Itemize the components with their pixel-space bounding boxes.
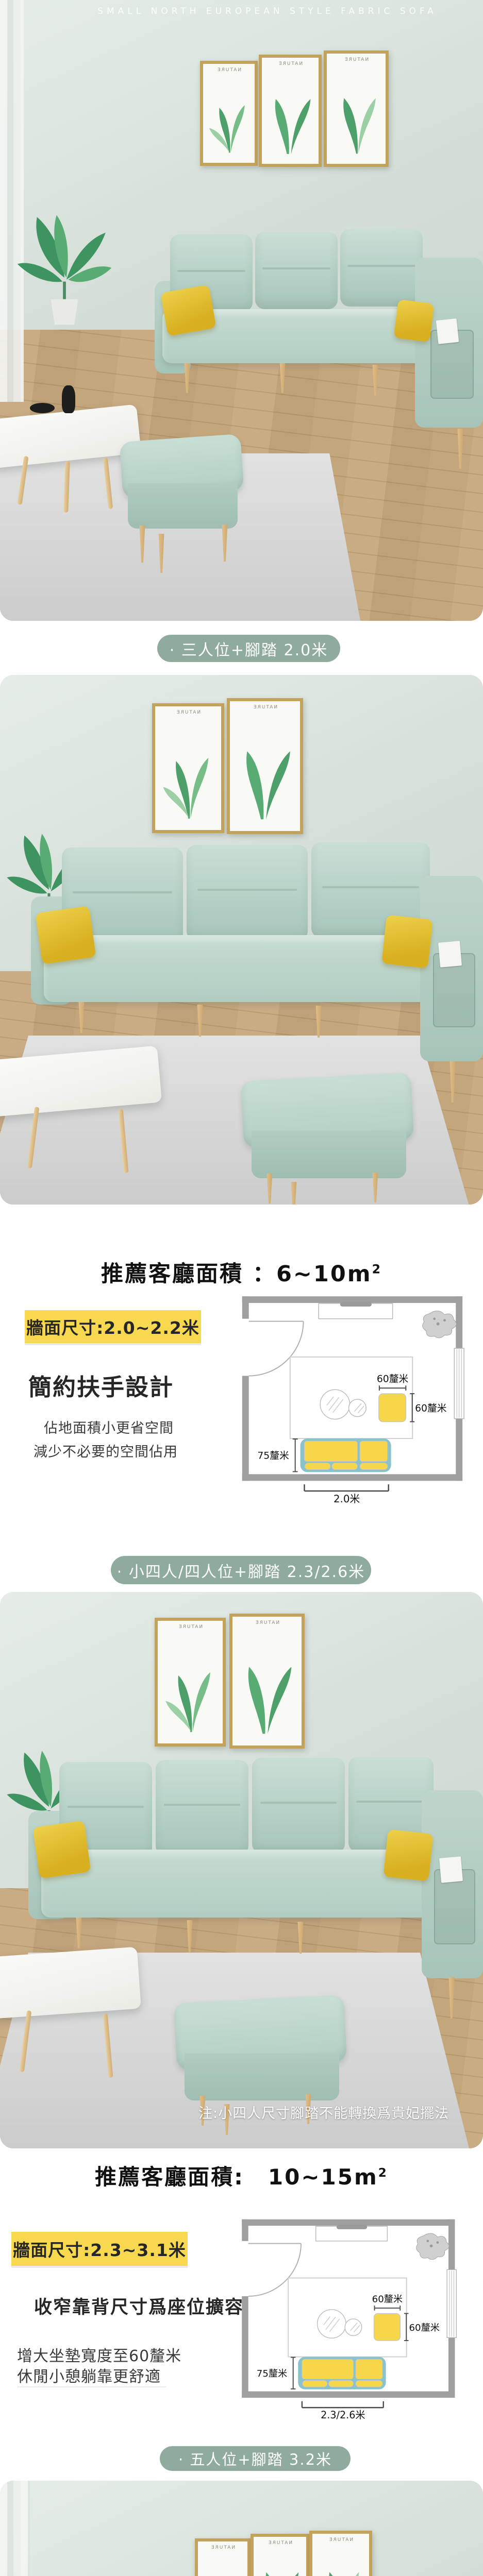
leaf-art-icon <box>266 79 315 160</box>
magazine <box>439 1856 463 1883</box>
section-title-sup: 2 <box>372 1262 382 1277</box>
magazine <box>438 941 462 967</box>
label-strip: · 三人位+腳踏 2.0米 <box>0 621 483 675</box>
footstool-body <box>128 483 238 529</box>
dim-bracket-left <box>291 2358 296 2389</box>
yellow-pillow <box>383 1829 433 1882</box>
leaf-artwork-frame: NATURE <box>259 55 322 167</box>
dim-label-top: 60釐米 <box>377 1373 409 1384</box>
black-vase <box>62 385 75 413</box>
floor-plan-2: 60釐米 60釐米 75釐米 2.3/2.6米 <box>233 2214 460 2422</box>
wall-size-highlight: 牆面尺寸:2.3~3.1米 <box>11 2232 188 2266</box>
yellow-pillow <box>394 299 435 342</box>
leaf-artwork-frame: NATURE <box>251 2534 309 2576</box>
info-section-1: 推薦客廳面積 ：6~10m2 牆面尺寸:2.0~2.2米 簡約扶手設計 佔地面積… <box>0 1205 483 1592</box>
feature-line: 休閒小憩躺靠更舒適 <box>17 2364 161 2386</box>
size-pill-four-seater: · 小四人/四人位+腳踏 2.3/2.6米 <box>111 1556 371 1584</box>
leaf-artwork-frame: NATURE <box>324 50 389 167</box>
feature-line: 佔地面積小更省空間 <box>44 1417 174 1437</box>
divider <box>17 2386 166 2387</box>
frame-caption: NATURE <box>262 61 319 66</box>
leaf-art-icon <box>162 1646 218 1739</box>
leaf-artwork-frame: NATURE <box>195 2538 251 2576</box>
product-detail-page: NATURE NATURE NATURE <box>0 0 483 2576</box>
photo-four-seater: NATURE NATURE 注:小四人尺寸腳踏不 <box>0 1592 483 2148</box>
photo-three-seater-close: NATURE NATURE <box>0 675 483 1205</box>
frame-caption: NATURE <box>254 2540 306 2546</box>
dim-label-top: 60釐米 <box>372 2294 403 2304</box>
sofa-back-cushion <box>340 229 423 307</box>
leaf-art-icon <box>331 76 381 160</box>
leaf-art-icon <box>237 1642 296 1740</box>
frame-caption: NATURE <box>155 710 221 715</box>
info-section-2: 推薦客廳面積:10~15m2 牆面尺寸:2.3~3.1米 收窄靠背尺寸爲座位擴容… <box>0 2148 483 2481</box>
yellow-pillow <box>33 1821 91 1879</box>
wall-size-highlight: 牆面尺寸:2.0~2.2米 <box>25 1310 201 1343</box>
footstool-body <box>185 2053 339 2100</box>
tv <box>340 1302 372 1307</box>
sofa-back-cushion <box>156 1760 248 1855</box>
dim-bracket-top <box>379 1385 406 1391</box>
section-title: 推薦客廳面積:10~15m2 <box>0 2160 483 2191</box>
tv <box>337 2225 367 2229</box>
coffee-table-top <box>0 1947 141 2021</box>
plan-footstool <box>379 1394 406 1421</box>
feature-heading: 收窄靠背尺寸爲座位擴容 <box>34 2293 244 2319</box>
frame-caption: NATURE <box>203 67 255 73</box>
leaf-artwork-frame: NATURE <box>227 698 303 834</box>
curtain <box>0 2481 30 2576</box>
photo-five-seater: NATURE NATURE NATURE <box>0 2481 483 2576</box>
leaf-art-icon <box>160 731 216 825</box>
yellow-pillow <box>381 915 432 969</box>
section-title-prefix: 推薦客廳面積: <box>95 2164 244 2190</box>
section-title-value: 10~15m <box>268 2164 378 2190</box>
leaf-art-icon <box>257 2555 303 2576</box>
frame-caption: NATURE <box>230 705 300 710</box>
plan-plant <box>423 1311 457 1338</box>
size-pill-five-seater: · 五人位+腳踏 3.2米 <box>160 2446 351 2471</box>
banner-title: SMALL NORTH EUROPEAN STYLE FABRIC SOFA <box>62 6 473 16</box>
leaf-art-icon <box>202 2559 244 2576</box>
dim-bracket-bottom <box>302 2401 384 2408</box>
dim-label-bottom: 2.0米 <box>334 1493 360 1505</box>
dim-bracket-bottom <box>304 1484 388 1491</box>
section-title-value: 6~10m <box>276 1261 372 1287</box>
yellow-pillow <box>36 906 96 964</box>
leaf-artwork-frame: NATURE <box>229 1614 305 1749</box>
black-bowl <box>30 403 55 413</box>
dim-bracket-left <box>293 1439 298 1471</box>
leaf-artwork-frame: NATURE <box>155 1618 226 1747</box>
section-title-prefix: 推薦客廳面積 ： <box>101 1261 276 1287</box>
feature-heading: 簡約扶手設計 <box>28 1368 174 1402</box>
leaf-art-icon <box>207 83 251 159</box>
frame-caption: NATURE <box>232 1620 302 1625</box>
door-swing-arc <box>249 1321 304 1376</box>
frame-caption: NATURE <box>198 2545 247 2550</box>
section-title: 推薦客廳面積 ：6~10m2 <box>0 1256 483 1288</box>
leaf-artwork-frame: NATURE <box>309 2531 372 2576</box>
dim-label-bottom: 2.3/2.6米 <box>321 2409 365 2421</box>
sofa-seat <box>41 1850 438 1918</box>
frame-caption: NATURE <box>327 57 386 62</box>
plan-sofa <box>298 2357 386 2389</box>
size-pill-three-seater: · 三人位+腳踏 2.0米 <box>157 635 340 662</box>
photo-three-seater: NATURE NATURE NATURE <box>0 0 483 621</box>
leaf-art-icon <box>317 2553 365 2576</box>
plan-sofa <box>301 1438 391 1472</box>
dim-label-right: 60釐米 <box>409 2323 439 2333</box>
sofa-seat <box>44 935 436 1002</box>
yellow-pillow <box>160 284 216 336</box>
dim-bracket-top <box>375 2306 401 2311</box>
section-title-sup: 2 <box>378 2166 388 2180</box>
dim-bracket-right <box>404 2313 409 2341</box>
plan-coffee-tables <box>318 2310 362 2338</box>
dim-label-left: 75釐米 <box>257 1450 289 1462</box>
sofa-back-cushion <box>255 232 338 309</box>
feature-line: 增大坐墊寬度至60釐米 <box>17 2343 181 2366</box>
dim-label-right: 60釐米 <box>415 1403 447 1414</box>
plan-coffee-tables <box>320 1389 366 1419</box>
sofa-back-cushion <box>187 845 308 940</box>
frame-caption: NATURE <box>312 2537 369 2543</box>
door-swing-arc <box>248 2244 301 2296</box>
plan-footstool <box>374 2313 401 2341</box>
feature-line: 減少不必要的空間佔用 <box>34 1440 178 1461</box>
frame-caption: NATURE <box>158 1624 223 1630</box>
footstool-note: 注:小四人尺寸腳踏不能轉換爲貴妃擺法 <box>198 2102 449 2122</box>
leaf-artwork-frame: NATURE <box>200 61 258 166</box>
dim-bracket-right <box>410 1394 414 1421</box>
dim-label-left: 75釐米 <box>257 2368 287 2379</box>
leaf-art-icon <box>235 727 295 826</box>
floor-plan-1: 60釐米 60釐米 75釐米 2.0米 <box>233 1291 468 1506</box>
magazine <box>436 318 459 344</box>
plan-plant <box>417 2233 449 2260</box>
potted-plant <box>15 196 113 340</box>
sofa-back-cushion <box>252 1758 345 1853</box>
leaf-artwork-frame: NATURE <box>152 703 224 833</box>
footstool-body <box>252 1131 406 1178</box>
